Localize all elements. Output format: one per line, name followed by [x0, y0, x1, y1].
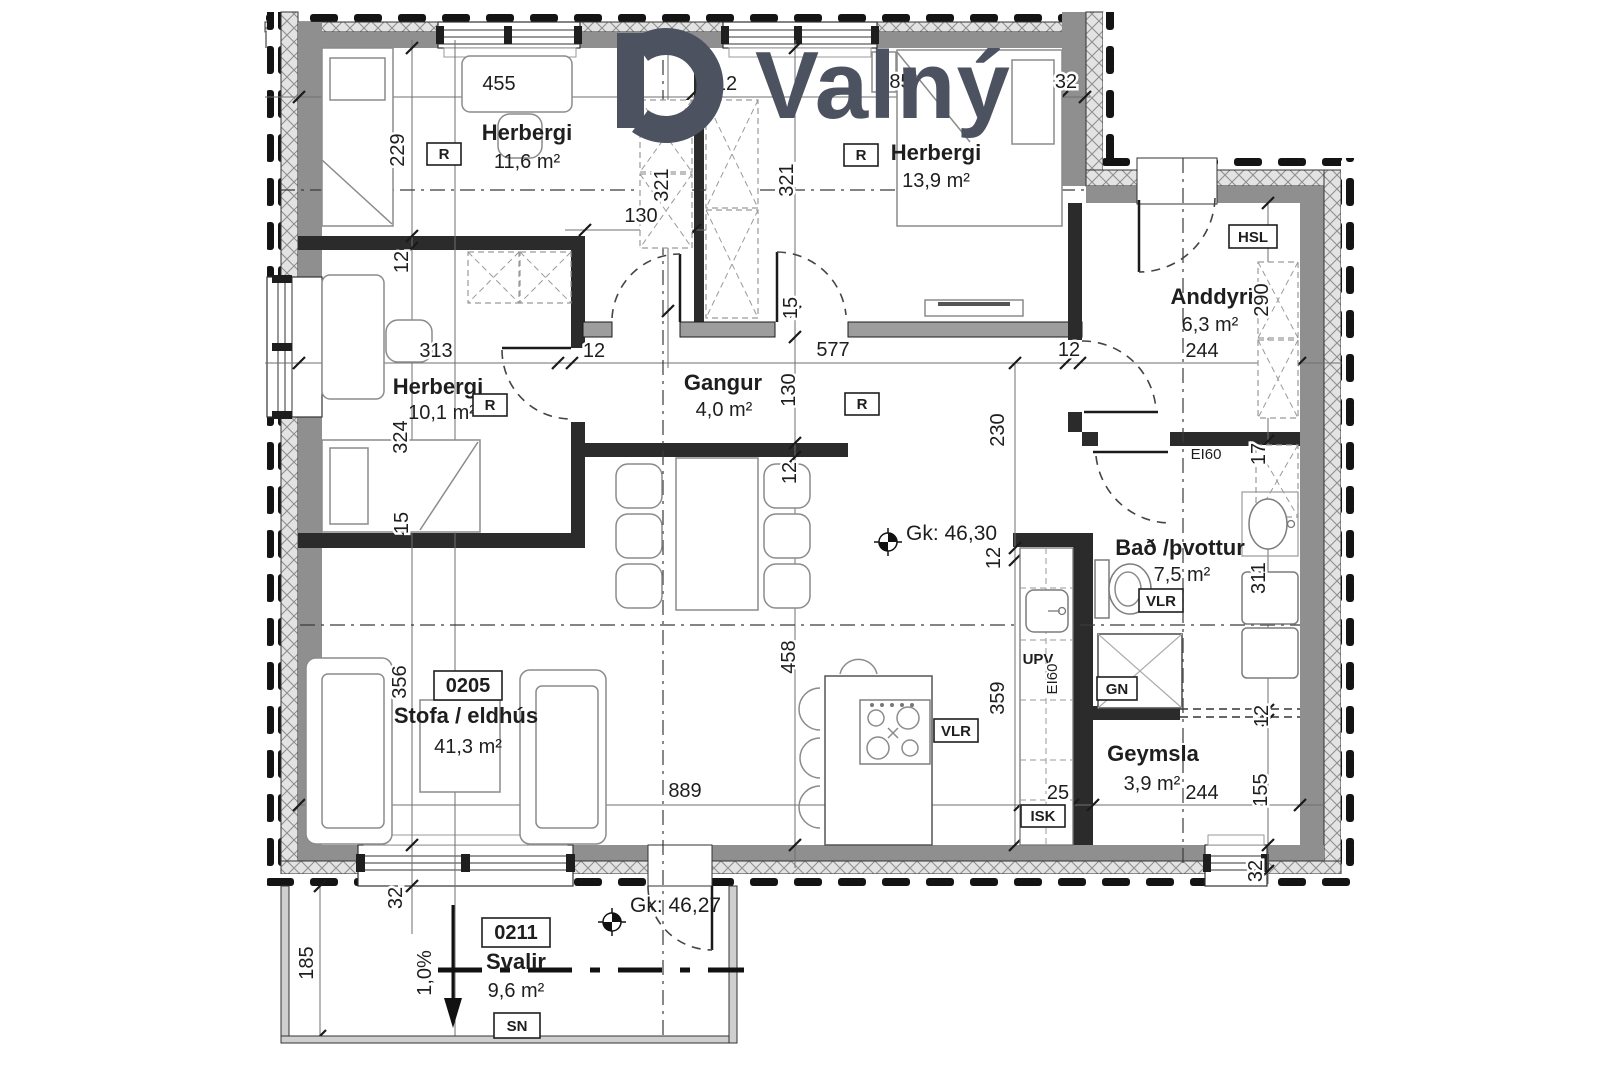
wall-kitchen-cap	[1013, 533, 1073, 547]
room-area: 3,9 m²	[1124, 773, 1181, 795]
sofa-right	[520, 670, 606, 844]
dim: 32	[385, 887, 407, 909]
wall-h101-gangur-lower	[571, 422, 585, 533]
bar-stool	[799, 786, 820, 828]
dryer	[1242, 628, 1298, 678]
dim: 229	[387, 133, 409, 166]
wall-top-dash-strip	[265, 12, 1090, 22]
door-bad	[1093, 452, 1170, 523]
wall-gangur-stub-2	[680, 322, 775, 337]
wall-bad-geymsla-overhead	[1180, 709, 1300, 717]
wall-gangur-stofa	[585, 443, 848, 457]
door-h116	[612, 254, 680, 322]
room-name: Herbergi	[393, 374, 483, 399]
room-area: 10,1 m²	[408, 402, 476, 424]
balcony-number: 0211	[494, 922, 537, 944]
wall-right-insulation	[1324, 170, 1341, 874]
wall-gangur-anddyri-lower	[1068, 412, 1082, 432]
room-area: 9,6 m²	[488, 980, 545, 1002]
wall-right-dash-strip	[1341, 158, 1354, 886]
wall-h116-h101	[298, 236, 585, 250]
dim: 12	[983, 547, 1005, 569]
room-area: 11,6 m²	[494, 151, 561, 173]
radiator-label: R	[439, 146, 450, 163]
dim: 130	[624, 205, 657, 227]
dim: 155	[1250, 773, 1272, 806]
dim: 577	[816, 339, 849, 361]
floorplan-drawing: Gk: 46,30 Gk: 46,27 1,0% Herbergi 11,6 m…	[0, 0, 1600, 1067]
wall-anddyri-bad-stub	[1082, 432, 1098, 446]
dim: 458	[778, 640, 800, 673]
room-area: 7,5 m²	[1154, 564, 1211, 586]
door-anddyri-gangur	[1082, 341, 1158, 412]
room-area: 6,3 m²	[1182, 314, 1239, 336]
unit-number: 0205	[446, 675, 491, 697]
wardrobe-h101	[468, 252, 571, 303]
bar-stool	[840, 659, 877, 674]
dim: 324	[390, 420, 412, 453]
dim: 244	[1185, 782, 1218, 804]
wall-right	[1300, 186, 1324, 861]
dim: 12	[1058, 339, 1080, 361]
fire-rating-label: EI60	[1044, 664, 1061, 695]
dim: 290	[1251, 283, 1273, 316]
sofa-left	[306, 658, 392, 844]
hsl-label: HSL	[1238, 229, 1268, 246]
room-gangur: Gangur 4,0 m²	[684, 370, 763, 421]
room-name: Bað /þvottur	[1115, 535, 1245, 560]
wall-left-insulation	[281, 12, 298, 874]
dim: 230	[987, 413, 1009, 446]
wall-kitchen-bad	[1073, 533, 1093, 845]
level-balcony: Gk: 46,27	[630, 894, 721, 917]
room-area: 4,0 m²	[696, 399, 753, 421]
dim: 15	[780, 297, 802, 319]
wall-h101-stofa	[298, 533, 585, 548]
dim: 12	[779, 462, 801, 484]
level-marker-main	[874, 528, 902, 556]
dim: 356	[389, 665, 411, 698]
room-name: Gangur	[684, 370, 763, 395]
kitchen-sink	[1026, 590, 1068, 632]
tv-bench-h139	[925, 300, 1023, 316]
dim: 311	[1248, 562, 1270, 594]
room-name: Anddyri	[1170, 284, 1253, 309]
room-name: Herbergi	[482, 120, 572, 145]
dim: 313	[419, 340, 452, 362]
bed-h116	[322, 48, 393, 226]
kitchen-island	[799, 659, 932, 845]
wall-anddyri-bad	[1170, 432, 1300, 446]
window-sill	[1208, 835, 1264, 845]
dim: 12	[391, 251, 413, 273]
dim: 32	[1055, 71, 1077, 93]
room-area: 41,3 m²	[434, 736, 502, 758]
room-h101: Herbergi 10,1 m²	[393, 374, 483, 424]
sn-label: SN	[507, 1018, 528, 1035]
wall-gangur-stub-1	[583, 322, 612, 337]
radiator-label: R	[857, 396, 868, 413]
room-svalir: 0211 Svalir 9,6 m² SN	[482, 918, 550, 1038]
brand-logo-mark-arc	[640, 41, 710, 129]
room-name: Stofa / eldhús	[394, 703, 538, 728]
desk-h116	[462, 56, 572, 112]
wall-upper-right-dash-strip	[1103, 12, 1117, 160]
dim: 321	[651, 168, 673, 201]
bar-stool	[800, 738, 820, 778]
radiator-label: R	[856, 147, 867, 164]
dim: 455	[482, 73, 515, 95]
room-stofa: 0205 Stofa / eldhús 41,3 m²	[394, 671, 538, 758]
room-name: Herbergi	[891, 140, 981, 165]
wall-gangur-anddyri-upper	[1068, 203, 1082, 340]
vlr-label: VLR	[1146, 593, 1176, 610]
wall-gangur-h139	[848, 322, 1082, 337]
desk-h101	[322, 275, 384, 399]
isk-label: ISK	[1030, 808, 1055, 825]
level-marker-balcony	[598, 908, 626, 936]
dim: 25	[1047, 782, 1069, 804]
dim: 17	[1248, 443, 1270, 465]
dim: 130	[778, 373, 800, 406]
room-name: Svalir	[486, 949, 546, 974]
level-main: Gk: 46,30	[906, 522, 997, 545]
dim: 185	[296, 946, 318, 979]
dim: 12	[583, 340, 605, 362]
dim: 15	[391, 512, 413, 534]
brand-logo: Valný	[617, 32, 1011, 139]
vlr-label: VLR	[941, 723, 971, 740]
dim: 889	[668, 780, 701, 802]
brand-wordmark: Valný	[755, 32, 1011, 139]
entry-door-opening	[1137, 158, 1217, 204]
room-name: Geymsla	[1107, 741, 1199, 766]
wardrobe-h139	[706, 100, 758, 318]
slope-label: 1,0%	[414, 950, 436, 996]
dim: 359	[987, 681, 1009, 714]
dim: 321	[776, 163, 798, 196]
wall-left-dash-strip	[267, 12, 281, 886]
gn-label: GN	[1106, 681, 1129, 698]
dim: 244	[1185, 340, 1218, 362]
room-area: 13,9 m²	[902, 170, 970, 192]
fire-rating-label: EI60	[1191, 446, 1222, 463]
dim: 32	[1245, 860, 1267, 882]
balcony-door-opening	[648, 845, 712, 886]
floorplan-page: Gk: 46,30 Gk: 46,27 1,0% Herbergi 11,6 m…	[0, 0, 1600, 1067]
dim: 12	[1251, 705, 1273, 727]
radiator-label: R	[485, 397, 496, 414]
bar-stool	[799, 688, 820, 730]
door-entry	[1139, 198, 1215, 272]
door-h101	[502, 348, 571, 419]
